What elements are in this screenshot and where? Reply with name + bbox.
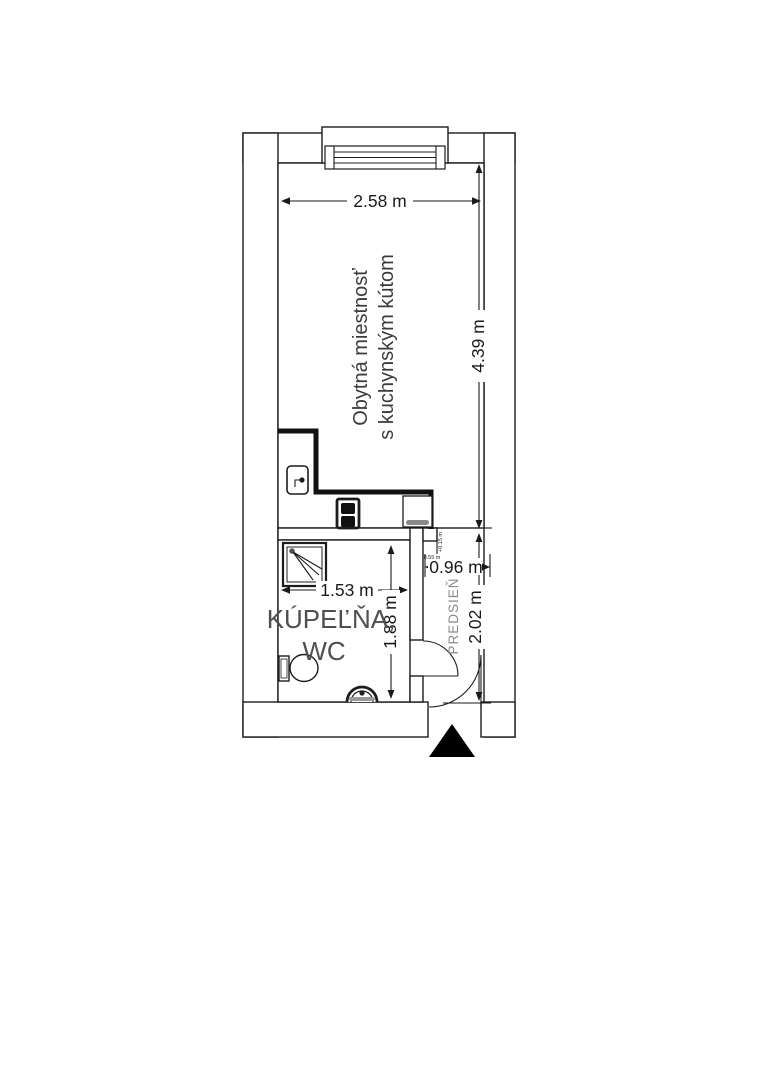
floorplan-page: 2.58 m 4.39 m 1.53 m 1.88 m 2 [0, 0, 764, 1080]
bathroom-label-line2: WC [302, 636, 345, 666]
entrance-arrow-icon [429, 724, 475, 757]
refrigerator-icon [403, 496, 432, 527]
wall-bottom-right [481, 702, 515, 737]
hallway-step [423, 528, 437, 541]
bathroom-label-line1: KÚPEĽŇA, [267, 604, 396, 634]
window-icon [322, 127, 448, 169]
living-room-label-line1: Obytná miestnosť [350, 268, 372, 426]
hallway-label: PREDSIEŇ [446, 577, 461, 654]
living-room-label-line2: s kuchynským kútom [376, 254, 398, 440]
dim-bathroom-width-label: 1.53 m [320, 580, 374, 600]
bathroom-hall-wall-upper [410, 528, 423, 640]
bathroom-top-wall [278, 528, 423, 540]
dim-living-width-label: 2.58 m [353, 191, 407, 211]
wall-right [484, 133, 515, 737]
dim-hallway-length-label: 2.02 m [465, 590, 485, 644]
bathroom-hall-wall-lower [410, 676, 423, 702]
kitchen-sink-icon [287, 466, 308, 494]
stove-icon [337, 499, 359, 528]
step-note-label: +0.15 m [438, 532, 444, 552]
wall-bottom-left [243, 702, 428, 737]
floorplan-drawing: 2.58 m 4.39 m 1.53 m 1.88 m 2 [0, 0, 764, 1080]
door-note-label: 0.55 m [424, 555, 441, 561]
wall-left [243, 133, 278, 737]
dim-living-length-label: 4.39 m [468, 319, 488, 373]
